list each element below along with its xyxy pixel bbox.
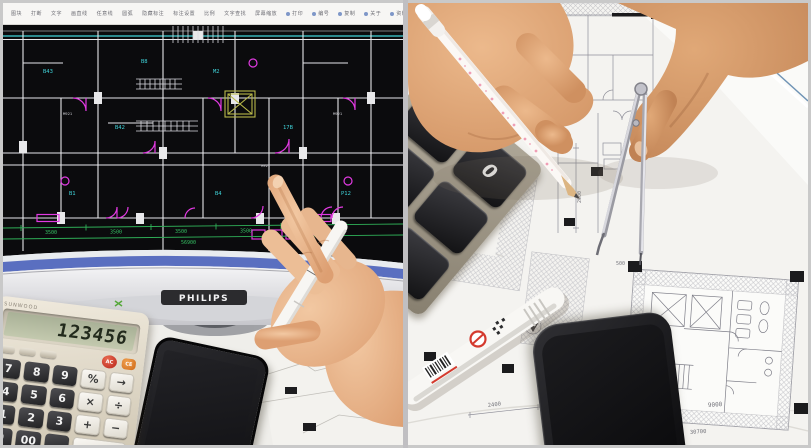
calculator-memory-key[interactable]	[19, 347, 36, 356]
cad-dim-label: 3500	[45, 230, 57, 236]
cad-room-label: B4	[215, 191, 222, 197]
smartphone-screen	[140, 349, 259, 445]
cad-menu-item[interactable]: 画直线	[71, 10, 88, 17]
cad-room-label: B1	[69, 191, 76, 197]
cad-door-label: M921	[63, 111, 73, 116]
cad-menu-item[interactable]: 圆弧	[122, 10, 133, 17]
photo-collage: 图块 打断 文字 画直线 任意线 圆弧 隐藏标注 标注设置 比例 文字查找 屏幕…	[0, 0, 811, 448]
calculator-key-00[interactable]: 00	[15, 430, 42, 445]
calculator-key-multiply[interactable]: ×	[77, 391, 104, 413]
cad-menu-bar: 图块 打断 文字 画直线 任意线 圆弧 隐藏标注 标注设置 比例 文字查找 屏幕…	[3, 3, 403, 25]
cad-toolbar-copy-button[interactable]: 复制	[338, 10, 355, 17]
cad-toolbar-about-button[interactable]: 关于	[364, 10, 381, 17]
cad-door-label: M921	[261, 163, 271, 168]
cad-dim-total-label: 56900	[181, 240, 196, 246]
cad-dim-label: 3500	[240, 229, 252, 235]
cad-door-label: M921	[333, 111, 343, 116]
calculator-key-5[interactable]: 5	[21, 384, 48, 406]
blueprint-dim-500: 500	[616, 261, 625, 267]
calculator-key-7[interactable]: 7	[3, 358, 22, 380]
calculator-key-arrow[interactable]: →	[108, 372, 135, 394]
cad-menu-item[interactable]: 标注设置	[173, 10, 195, 17]
cad-toolbar-number-button[interactable]: 编号	[312, 10, 329, 17]
cad-dim-label: 3500	[110, 230, 122, 236]
cad-menu-item[interactable]: 文字	[51, 10, 62, 17]
cad-menu-item[interactable]: 文字查找	[224, 10, 246, 17]
calculator-key-6[interactable]: 6	[49, 387, 76, 409]
calculator-key-dot[interactable]: .	[43, 433, 70, 445]
calculator-key-0[interactable]: 0	[3, 426, 13, 445]
monitor-brand-label: PHILIPS	[179, 294, 229, 304]
cad-room-label: B43	[43, 69, 53, 75]
calculator-key-divide[interactable]: ÷	[105, 394, 132, 416]
calculator-memory-key[interactable]	[40, 350, 57, 359]
cad-dim-label: 3500	[305, 228, 317, 234]
cad-menu-item[interactable]: 隐藏标注	[142, 10, 164, 17]
calculator-key-2[interactable]: 2	[18, 407, 45, 429]
cad-toolbar-print-button[interactable]: 打印	[286, 10, 303, 17]
right-photo-blueprint-desk: 9000 30700 2400 2000 500 0 0 1 4	[408, 3, 808, 445]
cad-menu-item[interactable]: 任意线	[97, 10, 114, 17]
cad-menu-item[interactable]: 比例	[204, 10, 215, 17]
cad-room-label: B42	[115, 125, 125, 131]
blueprint-dim-9000: 9000	[708, 401, 723, 409]
smartphone-screen	[540, 323, 680, 445]
monitor: B43 B8 M2 B42 17B B1 B4 P12 M921 M921 M9…	[3, 3, 403, 325]
cad-menu-item[interactable]: 打断	[31, 10, 42, 17]
calculator: SUNWOOD 123456 AC CE 7 8 9 % → 4 5 6 ×	[3, 295, 150, 445]
calculator-key-percent[interactable]: %	[80, 368, 107, 390]
calculator-key-3[interactable]: 3	[46, 410, 73, 432]
blueprint-dim-2000: 2000	[577, 191, 583, 203]
cad-toolbar-help-button[interactable]: 资料	[390, 10, 403, 17]
calculator-ce-key[interactable]: CE	[121, 358, 136, 371]
cad-room-label: P12	[341, 191, 351, 197]
blueprint-dim-30700: 30700	[690, 429, 707, 436]
cad-room-label: M2	[213, 69, 220, 75]
cad-menu-item[interactable]: 图块	[11, 10, 22, 17]
calculator-key-9[interactable]: 9	[52, 365, 79, 387]
left-photo-cad-workstation: 图块 打断 文字 画直线 任意线 圆弧 隐藏标注 标注设置 比例 文字查找 屏幕…	[3, 3, 403, 445]
cad-menu-item[interactable]: 屏幕缩放	[255, 10, 277, 17]
cad-room-label: B8	[141, 59, 148, 65]
cad-dim-label: 3500	[175, 229, 187, 235]
calculator-key-minus[interactable]: −	[102, 417, 129, 439]
calculator-ac-key[interactable]: AC	[101, 355, 117, 370]
calculator-key-plus[interactable]: +	[74, 414, 101, 436]
cad-room-label: 17B	[283, 125, 294, 131]
smartphone[interactable]	[530, 310, 688, 445]
calculator-memory-key[interactable]	[3, 345, 15, 354]
calculator-key-1[interactable]: 1	[3, 403, 16, 425]
calculator-key-4[interactable]: 4	[3, 381, 19, 403]
calculator-key-8[interactable]: 8	[23, 361, 50, 383]
calculator-keypad: 7 8 9 % → 4 5 6 × ÷ 1 2 3 + − 0 00 . =	[3, 358, 135, 445]
